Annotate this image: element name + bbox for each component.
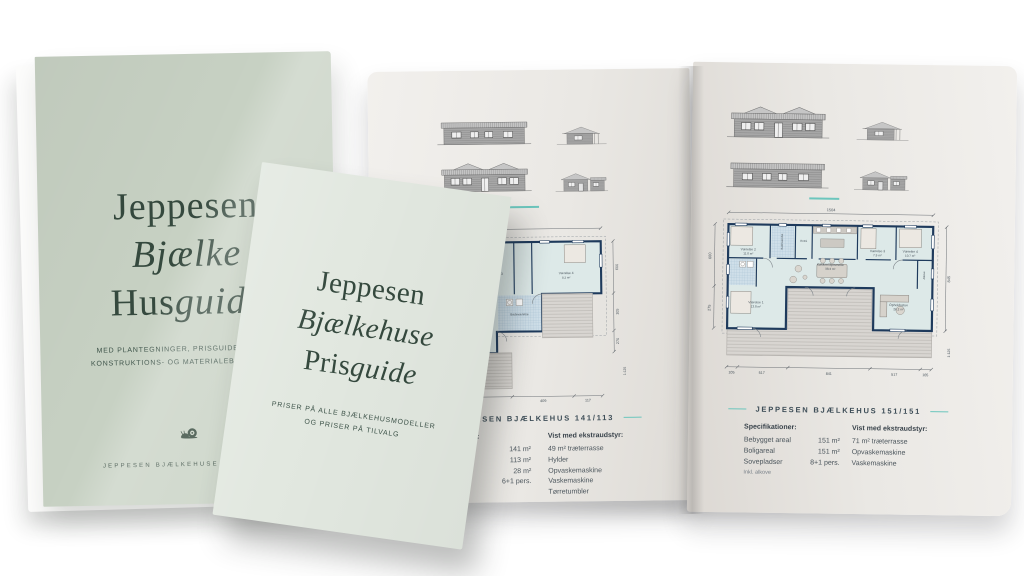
right-page-caption: JEPPESEN BJÆLKEHUS 151/151: [728, 404, 948, 416]
room-area: 7.9 m²: [873, 253, 882, 257]
prisguide-title: Jeppesen Bjælkehuse Prisguide: [233, 251, 499, 405]
dimension-label: 275: [708, 304, 712, 311]
spec-value: 141 m²: [509, 445, 531, 456]
dimension-label: 845: [947, 276, 951, 283]
dimension-label: 105: [616, 309, 620, 315]
room-area: 38.3 m²: [825, 267, 835, 271]
dimension-label: 517: [759, 371, 765, 375]
right-page-caption-text: JEPPESEN BJÆLKEHUS 151/151: [755, 405, 921, 416]
dimension-label: 517: [891, 373, 897, 377]
dimension-label: 1504: [827, 208, 836, 212]
dimension-label: 105: [728, 370, 734, 374]
specs-heading: Specifikationer:: [744, 423, 840, 435]
spec-value: 6+1 pers.: [502, 477, 532, 488]
teal-divider: [809, 197, 839, 199]
caption-dash-right: [623, 416, 641, 418]
left-page-extras: Vist med ekstraudstyr: 49 m² træterrasse…: [548, 430, 659, 498]
elevation-front-view-icon: [724, 104, 832, 142]
elevations-right-page: [723, 104, 918, 193]
extras-item: Opvaskemaskine: [852, 448, 962, 460]
extras-heading: Vist med ekstraudstyr:: [548, 430, 658, 442]
elevation-rear-gable-view-icon: [547, 170, 617, 194]
elevation-rear-gable-view-icon: [845, 168, 917, 193]
spec-label: Bebygget areal: [744, 435, 791, 447]
room-area: 26.2 m²: [893, 307, 903, 311]
room-area: 8.2 m²: [562, 276, 570, 280]
spec-value: 113 m²: [510, 456, 531, 467]
floor-plan-151-151: 1504: [703, 202, 958, 398]
elevation-side-view-icon: [434, 114, 534, 148]
dimension-label: 841: [826, 372, 832, 376]
prisguide-subtitle: PRISER PÅ ALLE BJÆLKEHUSMODELLER OG PRIS…: [226, 392, 479, 453]
prisguide-booklet: Jeppesen Bjælkehuse Prisguide PRISER PÅ …: [212, 162, 511, 550]
spec-value: 151 m²: [818, 436, 840, 447]
spec-label: Sovepladser: [743, 457, 782, 468]
extras-heading: Vist med ekstraudstyr:: [852, 424, 962, 436]
right-page-extras: Vist med ekstraudstyr: 71 m² træterrasse…: [851, 424, 962, 471]
room-area: 10.7 m²: [905, 254, 915, 258]
extras-item: Vaskemaskine: [851, 459, 961, 471]
dimension-label: 270: [616, 338, 620, 344]
catalog-right-page: 1504: [687, 62, 1017, 516]
room-area: 13.8 m²: [751, 304, 761, 308]
elevation-gable-view-icon: [846, 118, 918, 143]
caption-dash-right: [930, 411, 948, 413]
room-label: Entré: [800, 239, 807, 243]
caption-dash-left: [728, 408, 746, 410]
scale-label: 1:125: [947, 349, 951, 358]
spec-label: Boligareal: [744, 446, 775, 457]
room-label: Badeværelse: [780, 233, 784, 249]
room-area: 11.0 m²: [743, 252, 753, 256]
room-label: Alkove: [922, 271, 926, 280]
scale-label: 1:125: [623, 367, 627, 376]
dimension-label: 409: [540, 399, 546, 403]
room-label: Værelse 4: [559, 271, 574, 275]
right-page-specs: Specifikationer: Bebygget areal151 m² Bo…: [743, 423, 840, 479]
extras-item: Tørretumbler: [548, 487, 658, 499]
dimension-label: 105: [922, 373, 928, 377]
dimension-label: 600: [708, 252, 712, 259]
elevation-rear-view-icon: [723, 154, 831, 192]
dimension-label: 117: [585, 398, 591, 402]
spec-value: 8+1 pers.: [810, 458, 840, 469]
spec-value: 28 m²: [513, 467, 531, 478]
specs-note: Inkl. alkove: [743, 469, 839, 479]
elevation-gable-view-icon: [546, 123, 616, 147]
elevations-left-page: [434, 113, 617, 195]
dimension-label: 600: [615, 264, 619, 270]
room-label: Badeværelse: [510, 312, 528, 316]
teal-divider: [509, 206, 539, 208]
spec-value: 151 m²: [818, 447, 840, 458]
